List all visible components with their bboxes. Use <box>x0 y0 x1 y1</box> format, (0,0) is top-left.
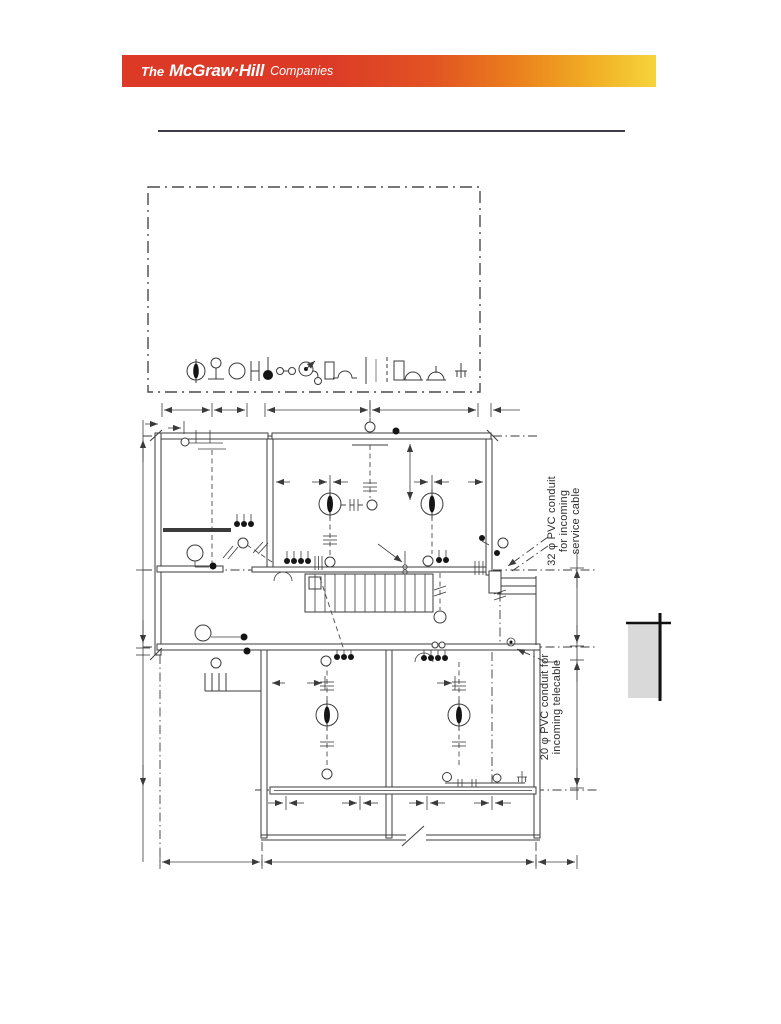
panel-box-icon <box>394 361 404 380</box>
floor-plan: 32 φ PVC conduit for incoming service ca… <box>136 400 598 869</box>
annotation-service-conduit: 32 φ PVC conduit for incoming service ca… <box>546 476 582 566</box>
ceiling-light-icon <box>316 700 338 730</box>
linked-outlets-icon <box>277 368 296 375</box>
scanned-page: The McGraw·Hill Companies <box>0 0 781 1024</box>
lamp-outlet-icon <box>229 363 245 379</box>
telecable-conduit-line1: 20 φ PVC conduit for <box>539 654 551 761</box>
ceiling-light-icon <box>319 489 341 519</box>
ceiling-light-icon <box>421 489 443 519</box>
switch-with-pilot-lamp-icon <box>299 361 322 385</box>
indicator-icon <box>426 366 446 380</box>
service-conduit-line3: service cable <box>570 488 582 555</box>
earth-icon <box>517 771 527 783</box>
earth-connection-icon <box>455 363 467 378</box>
telecable-conduit-line2: incoming telecable <box>551 660 563 755</box>
service-conduit-line2: for incoming <box>558 490 570 552</box>
fluorescent-fitting-icon <box>251 361 259 381</box>
distribution-board-icon <box>325 362 334 379</box>
buzzer-icon <box>403 372 423 380</box>
stairs <box>305 544 433 650</box>
figure-drawing: 32 φ PVC conduit for incoming service ca… <box>0 0 781 1024</box>
pendant-luminaire-icon <box>208 358 224 379</box>
push-button-icon <box>263 357 273 380</box>
service-conduit-line1: 32 φ PVC conduit <box>546 476 558 566</box>
side-tab <box>626 613 671 701</box>
ceiling-luminaire-icon <box>187 359 205 383</box>
annotation-telecable-conduit: 20 φ PVC conduit for incoming telecable <box>539 654 563 761</box>
ceiling-light-icon <box>448 700 470 730</box>
legend-symbols <box>187 357 467 385</box>
bell-icon <box>333 371 357 378</box>
wiring <box>189 443 525 787</box>
